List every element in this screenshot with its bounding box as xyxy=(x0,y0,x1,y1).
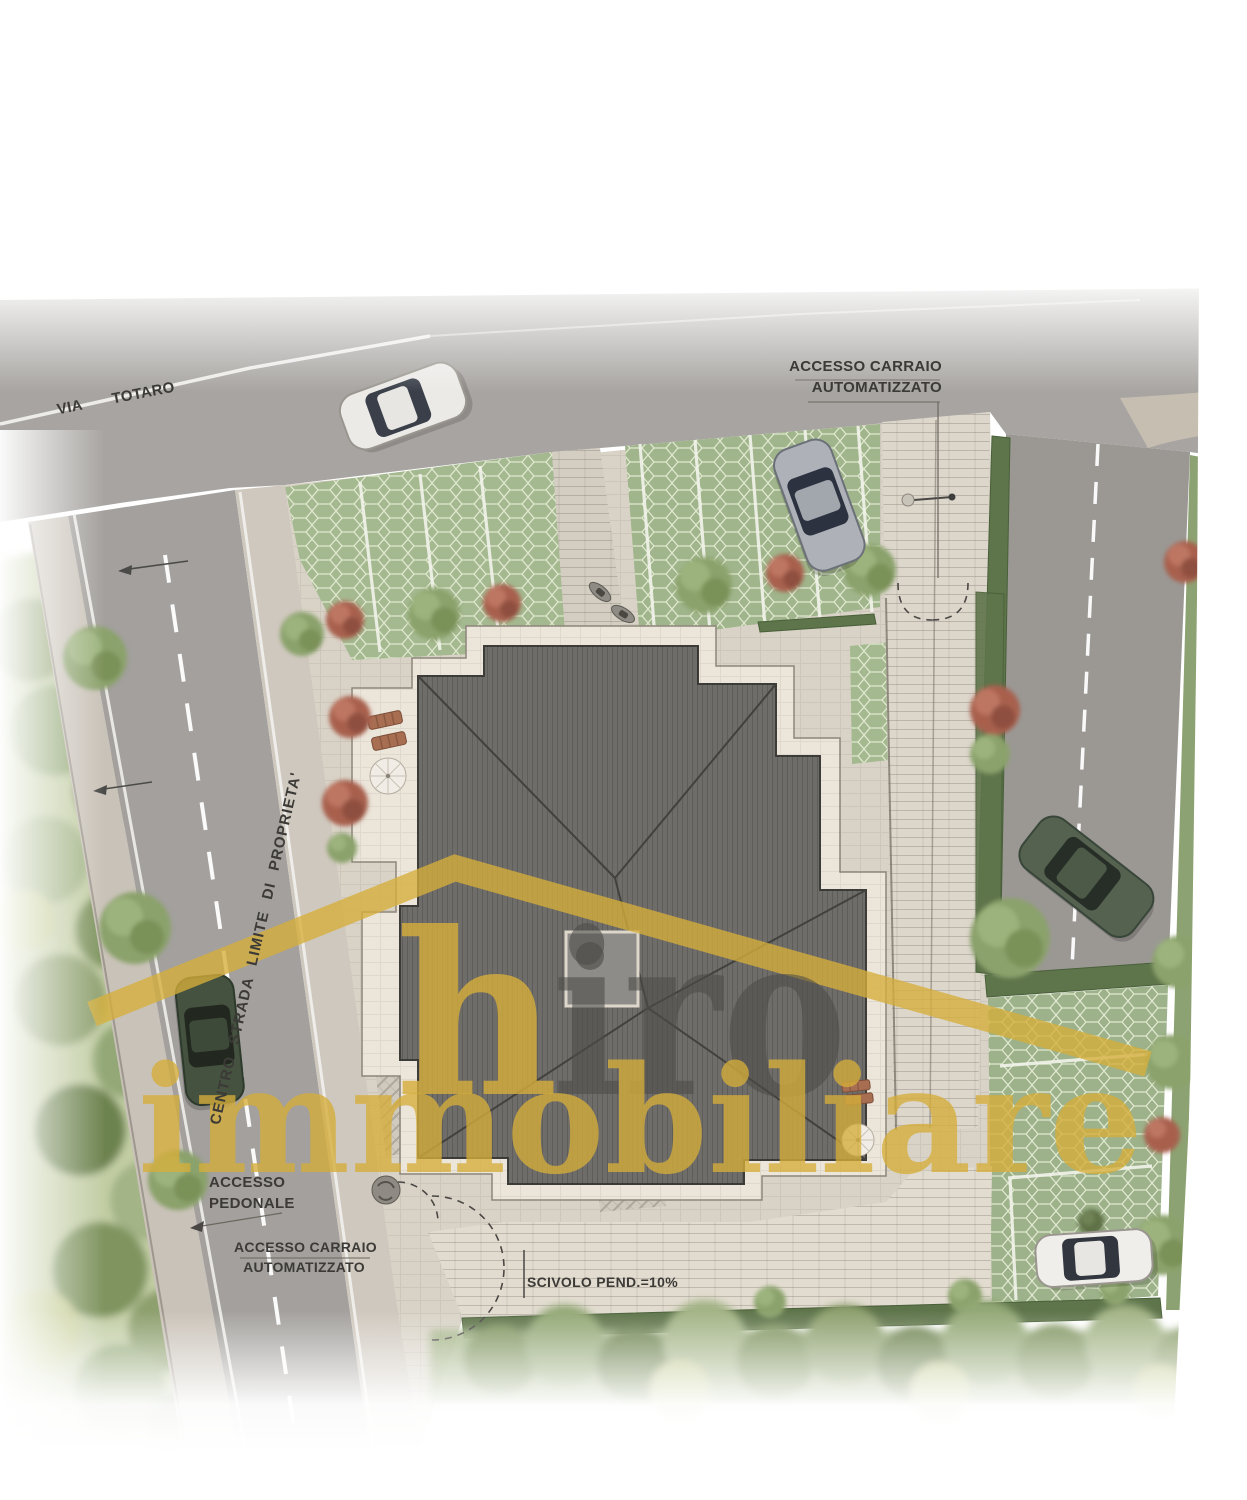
pedestrian-access-line1: ACCESSO xyxy=(209,1172,295,1193)
access-gate-top-line2: AUTOMATIZZATO xyxy=(768,377,942,398)
green-tree-icon xyxy=(327,833,357,863)
pedestrian-access-line2: PEDONALE xyxy=(209,1193,295,1214)
red-tree-icon xyxy=(322,780,368,826)
green-tree-icon xyxy=(280,612,324,656)
green-tree-icon xyxy=(970,898,1050,978)
site-plan-page: h iro immobiliare VIA TOTARO ACCESSO CAR… xyxy=(0,0,1247,1500)
green-tree-icon xyxy=(676,557,732,613)
red-tree-icon xyxy=(1144,1117,1180,1153)
red-tree-icon xyxy=(970,685,1020,735)
green-tree-icon xyxy=(970,734,1010,774)
umbrella-icon xyxy=(370,758,406,794)
access-gate-bottom-line1: ACCESSO CARRAIO xyxy=(234,1237,374,1257)
access-gate-bottom-label: ACCESSO CARRAIO AUTOMATIZZATO xyxy=(234,1237,374,1277)
access-gate-top-label: ACCESSO CARRAIO AUTOMATIZZATO xyxy=(768,356,942,398)
access-gate-top-line1: ACCESSO CARRAIO xyxy=(768,356,942,377)
red-tree-icon xyxy=(329,696,371,738)
ramp-slope-label: SCIVOLO PEND.=10% xyxy=(527,1272,678,1293)
red-tree-icon xyxy=(766,554,804,592)
green-tree-icon xyxy=(408,588,460,640)
white-car-icon xyxy=(1034,1228,1159,1292)
red-tree-icon xyxy=(326,601,364,639)
green-tree-icon xyxy=(99,892,171,964)
pedestrian-access-label: ACCESSO PEDONALE xyxy=(209,1172,295,1214)
red-tree-icon xyxy=(483,584,521,622)
access-gate-bottom-line2: AUTOMATIZZATO xyxy=(234,1257,374,1277)
